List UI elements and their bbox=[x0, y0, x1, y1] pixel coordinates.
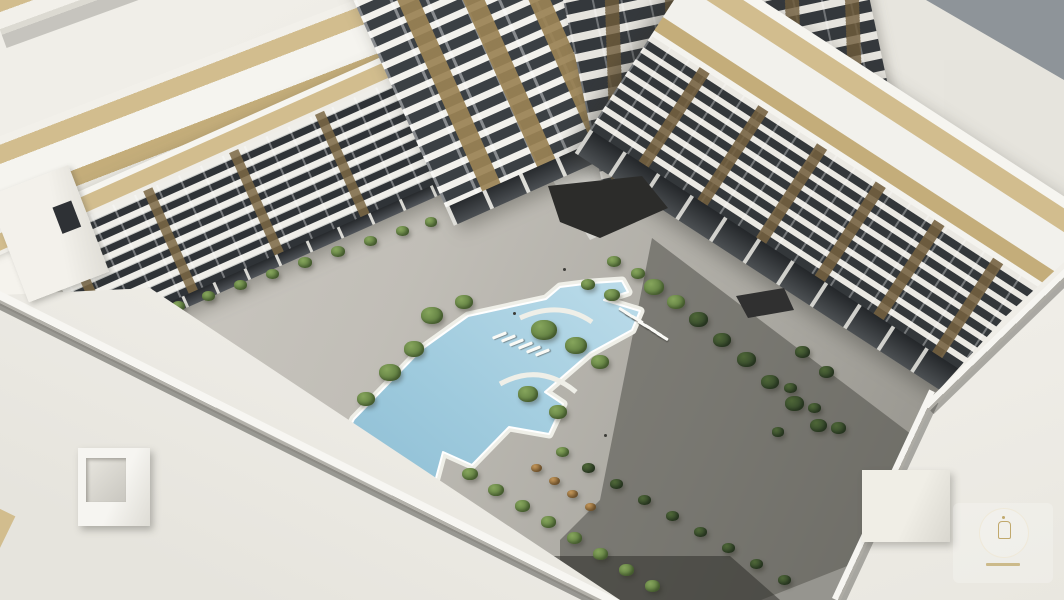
planter bbox=[593, 548, 608, 560]
planter bbox=[795, 346, 810, 358]
planter bbox=[694, 527, 707, 537]
aerial-render-scene bbox=[0, 0, 1064, 600]
planter bbox=[531, 464, 542, 473]
planter bbox=[722, 543, 735, 553]
planter bbox=[784, 383, 797, 393]
planter bbox=[549, 405, 567, 419]
planter bbox=[750, 559, 763, 569]
planter bbox=[455, 295, 473, 309]
person-dot bbox=[513, 312, 516, 315]
planter bbox=[567, 532, 582, 544]
planter bbox=[379, 364, 401, 381]
planter bbox=[266, 269, 279, 279]
planter bbox=[667, 295, 685, 309]
planter bbox=[364, 236, 377, 246]
person-dot bbox=[563, 268, 566, 271]
planter bbox=[202, 291, 215, 301]
planter bbox=[610, 479, 623, 489]
planter bbox=[808, 403, 821, 413]
planter bbox=[819, 366, 834, 378]
planter bbox=[581, 279, 595, 290]
planter bbox=[631, 268, 645, 279]
planter bbox=[604, 289, 620, 301]
watermark-badge bbox=[953, 503, 1053, 583]
planter bbox=[331, 246, 345, 257]
planter bbox=[518, 386, 538, 402]
planter bbox=[810, 419, 827, 432]
planter bbox=[565, 337, 587, 354]
planter bbox=[785, 396, 804, 411]
planter bbox=[462, 468, 478, 480]
planter bbox=[515, 500, 530, 512]
planter bbox=[831, 422, 846, 434]
planter bbox=[357, 392, 375, 406]
planter bbox=[585, 503, 596, 512]
lantern-icon bbox=[998, 521, 1011, 539]
sun-lounger bbox=[657, 332, 670, 341]
roof-bulkhead bbox=[78, 448, 150, 526]
rooftop-unit bbox=[862, 470, 950, 542]
planter bbox=[396, 226, 409, 236]
planter bbox=[549, 477, 560, 486]
planter bbox=[778, 575, 791, 585]
planter bbox=[772, 427, 784, 436]
planter bbox=[531, 320, 557, 340]
person-dot bbox=[604, 434, 607, 437]
planter bbox=[421, 307, 443, 324]
planter bbox=[556, 447, 569, 457]
planter bbox=[234, 280, 247, 290]
planter bbox=[591, 355, 609, 369]
planter bbox=[638, 495, 651, 505]
planter bbox=[644, 279, 664, 295]
planter bbox=[404, 341, 424, 357]
planter bbox=[737, 352, 756, 367]
planter bbox=[567, 490, 578, 499]
planter bbox=[298, 257, 312, 268]
watermark-text-line bbox=[986, 563, 1020, 566]
planter bbox=[761, 375, 779, 389]
planter bbox=[645, 580, 660, 592]
lantern-icon-dot bbox=[1002, 516, 1005, 519]
planter bbox=[689, 312, 708, 327]
planter bbox=[619, 564, 634, 576]
planter bbox=[541, 516, 556, 528]
planter bbox=[488, 484, 504, 496]
planter bbox=[666, 511, 679, 521]
planter bbox=[607, 256, 621, 267]
watermark-circle bbox=[979, 508, 1029, 558]
planter bbox=[713, 333, 731, 347]
planter bbox=[425, 217, 437, 226]
planter bbox=[582, 463, 595, 473]
